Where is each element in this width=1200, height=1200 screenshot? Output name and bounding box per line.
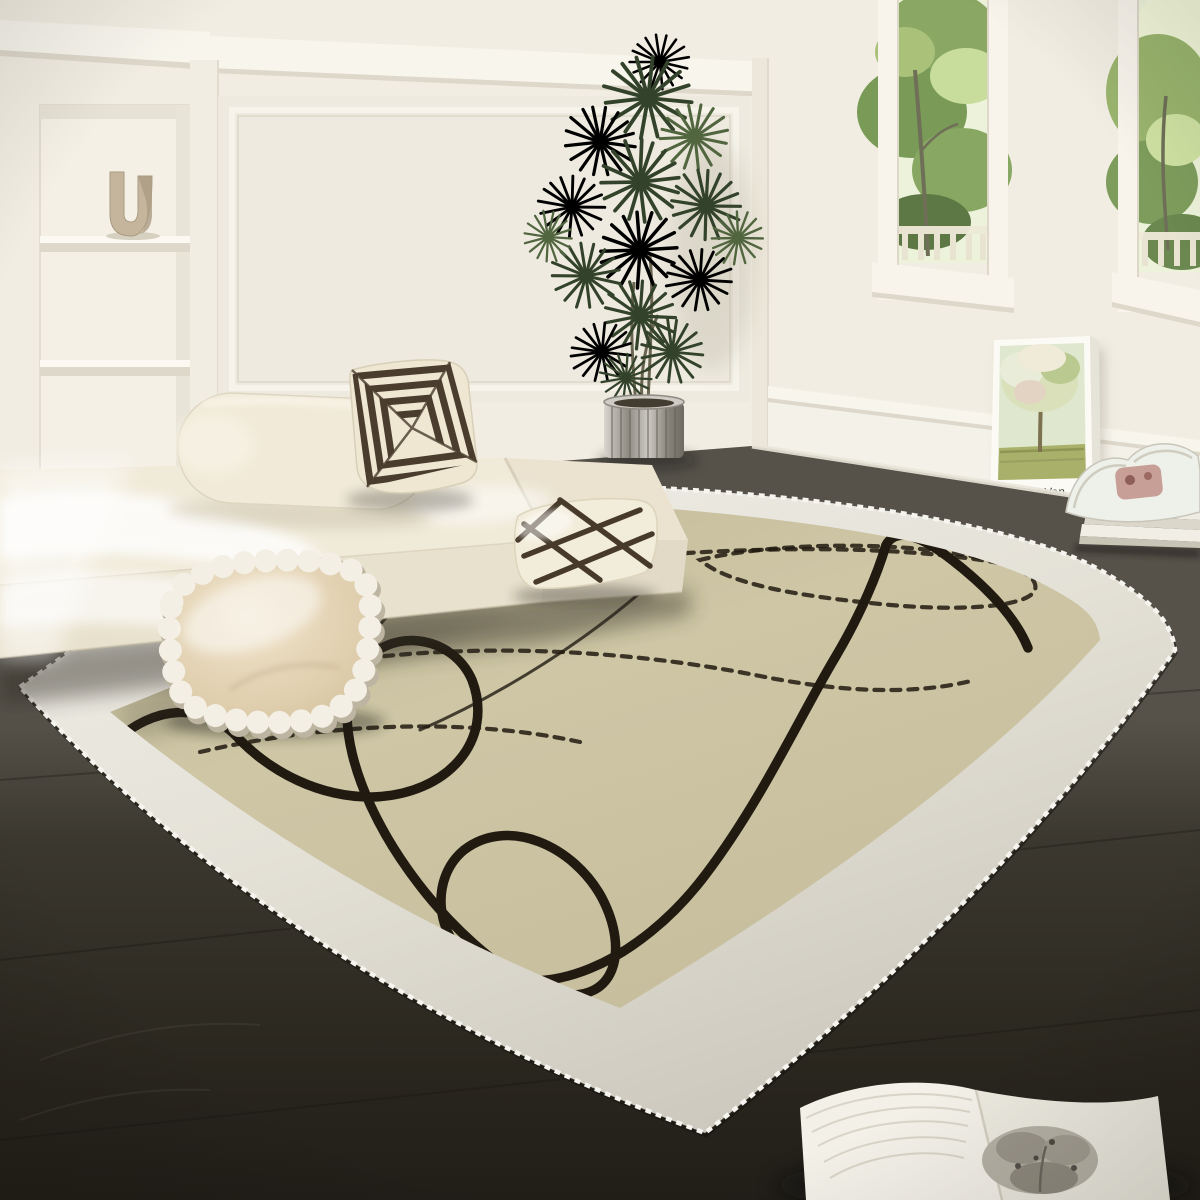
- vignette: [0, 0, 1200, 1200]
- photo-stage: Vincent Van: [0, 0, 1200, 1200]
- living-room-photo: Vincent Van: [0, 0, 1200, 1200]
